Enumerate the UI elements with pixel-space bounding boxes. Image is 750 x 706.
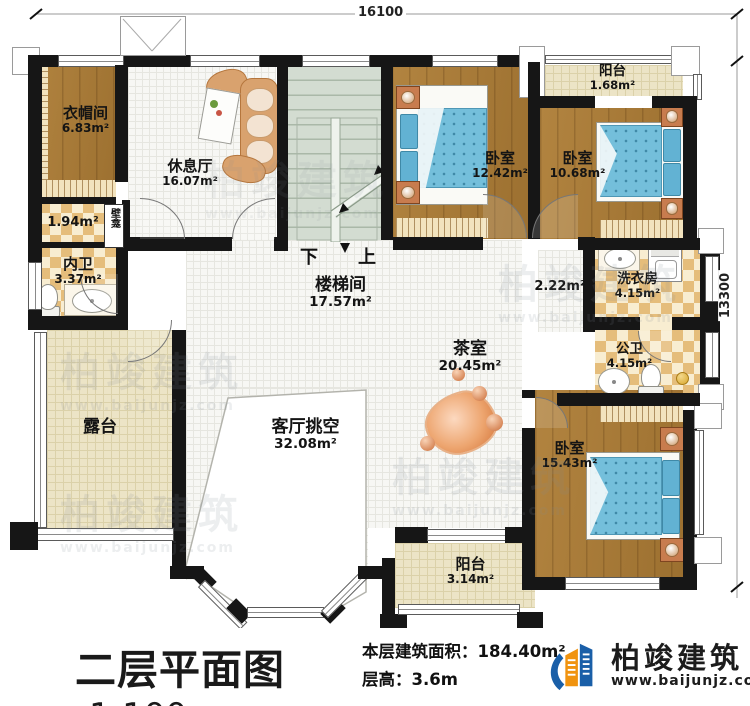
room-label-living-void: 客厅挑空32.08m² — [248, 418, 363, 452]
bed1-nightstand — [396, 181, 420, 204]
room-label-bedroom2: 卧室10.68m² — [530, 150, 625, 180]
laundry-sink — [604, 248, 636, 269]
window — [427, 529, 507, 541]
pebble — [420, 436, 435, 451]
dimension-top: 16100 — [355, 5, 406, 20]
pillar — [694, 537, 722, 564]
stair-arrow — [340, 243, 350, 253]
window — [565, 577, 660, 590]
bed1-nightstand — [396, 86, 420, 109]
window — [694, 430, 704, 535]
wall — [395, 527, 428, 543]
skylight-box — [120, 16, 186, 56]
public-bath-sink — [598, 368, 630, 395]
room-label-bedroom3: 卧室15.43m² — [522, 440, 617, 470]
floor-lamp — [676, 372, 689, 385]
brand-logo-icon — [546, 636, 604, 696]
wall — [28, 197, 116, 204]
pillar-black — [10, 522, 38, 550]
terrace-railing — [34, 528, 174, 541]
opening — [522, 398, 535, 428]
room-label-hall: 2.22m² — [525, 280, 595, 295]
room-label-cloakroom: 衣帽间6.83m² — [38, 105, 133, 135]
room-label-tea-room: 茶室20.45m² — [420, 340, 520, 374]
wall — [382, 558, 395, 618]
bed3-nightstand — [660, 538, 684, 562]
wall — [128, 237, 232, 251]
wall — [595, 238, 700, 250]
floor-height-value: 3.6m — [412, 670, 458, 689]
window — [705, 256, 719, 302]
bay-window — [247, 607, 324, 618]
wall — [28, 316, 128, 330]
brand-logo: 柏竣建筑 www.baijunjz.com — [546, 636, 750, 696]
drawing-title-group: 二层平面图1:100 — [75, 636, 358, 706]
room-label-public-bath: 公卫4.15m² — [582, 342, 677, 370]
wall — [381, 62, 393, 240]
pebble — [486, 414, 503, 431]
window — [432, 55, 498, 67]
wall — [393, 237, 483, 250]
drawing-title: 二层平面图 — [75, 646, 285, 694]
skylight-lines — [119, 15, 185, 55]
opening — [640, 317, 672, 330]
bed2-nightstand — [661, 106, 683, 127]
brand-name: 柏竣建筑 — [611, 643, 750, 673]
balcony-railing — [398, 604, 520, 615]
window — [705, 332, 719, 378]
wall — [557, 393, 700, 406]
room-label-lounge: 休息厅16.07m² — [140, 158, 240, 188]
floor-area-line: 本层建筑面积：184.40m² — [362, 638, 566, 666]
brand-url: www.baijunjz.com — [611, 673, 750, 689]
stair-up-label: 上 — [358, 243, 376, 269]
wall — [505, 527, 535, 543]
brand-text: 柏竣建筑 www.baijunjz.com — [611, 643, 750, 689]
wall — [172, 330, 186, 576]
pillar — [694, 403, 722, 429]
room-label-terrace: 露台 — [55, 418, 145, 437]
title-bar: 二层平面图1:100 本层建筑面积：184.40m² 层高：3.6m — [0, 628, 750, 706]
wall — [683, 96, 697, 242]
room-label-closet: 1.94m² — [38, 216, 108, 231]
floor-info: 本层建筑面积：184.40m² 层高：3.6m — [362, 638, 566, 694]
staircase-detail — [285, 65, 389, 242]
floor-plan-page: 壁龛 衣帽间6.83m² 休息厅16.07m² 卧室12.42m² 阳台1.68… — [0, 0, 750, 706]
bed2-pillow — [663, 163, 681, 196]
room-label-stair-hall: 楼梯间17.57m² — [288, 276, 393, 310]
dimension-right: 13300 — [718, 270, 733, 321]
pillar — [671, 46, 700, 76]
sofa-cushion — [246, 88, 274, 112]
niche-label: 壁龛 — [107, 208, 122, 228]
sofa-cushion — [246, 114, 274, 138]
wall — [277, 62, 288, 240]
room-label-balcony-bottom: 阳台3.14m² — [423, 556, 518, 586]
stair-down-label: 下 — [300, 243, 318, 269]
bed2-pillow — [663, 129, 681, 162]
terrace-railing — [34, 332, 47, 528]
room-label-master-bath: 内卫3.37m² — [38, 256, 118, 286]
room-label-laundry: 洗衣房4.15m² — [590, 272, 685, 300]
table-decor — [210, 100, 218, 108]
window — [190, 55, 260, 67]
bed3-pillow — [662, 498, 680, 534]
bed1-pillow — [400, 114, 418, 149]
opening — [595, 96, 652, 108]
window — [302, 55, 370, 67]
floor-height-line: 层高：3.6m — [362, 666, 566, 694]
bed3-nightstand — [660, 427, 684, 451]
bed2-nightstand — [661, 198, 683, 219]
drawing-scale: 1:100 — [89, 696, 187, 706]
pillar — [698, 228, 724, 254]
room-label-balcony-top: 阳台1.68m² — [565, 64, 660, 92]
bed3-pillow — [662, 460, 680, 496]
pebble — [472, 386, 487, 401]
table-decor — [216, 110, 222, 116]
